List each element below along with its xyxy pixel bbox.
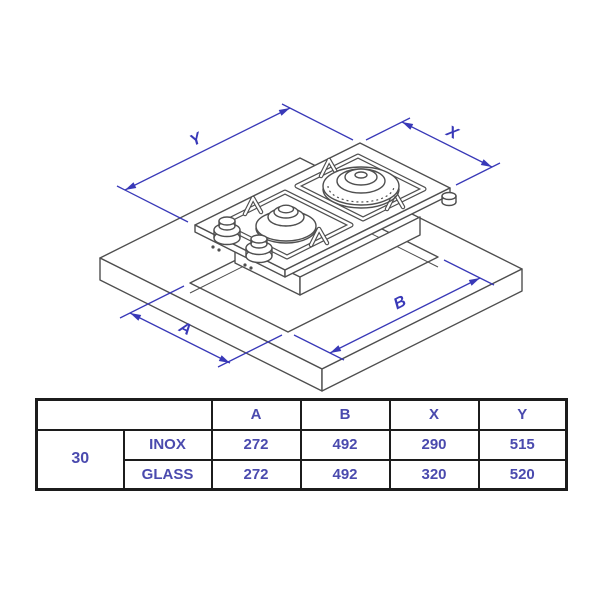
value-cell: 515 bbox=[479, 430, 567, 460]
dim-a-arrow bbox=[219, 355, 230, 363]
header-col-b: B bbox=[301, 400, 390, 430]
value-cell: 290 bbox=[390, 430, 479, 460]
dimensions-table: A B X Y 30 INOX 272 492 290 515 GLASS 27… bbox=[35, 398, 568, 491]
header-col-x: X bbox=[390, 400, 479, 430]
page: A B bbox=[0, 0, 600, 600]
dim-x-arrow bbox=[402, 122, 413, 130]
header-col-y: Y bbox=[479, 400, 567, 430]
header-col-a: A bbox=[212, 400, 301, 430]
gas-connection-tab bbox=[442, 193, 456, 206]
dim-x-extension-line bbox=[456, 163, 500, 185]
dim-y-extension-line bbox=[117, 186, 188, 222]
dim-y-label: Y bbox=[187, 129, 205, 150]
value-cell: 272 bbox=[212, 460, 301, 490]
dim-y-arrow bbox=[279, 108, 290, 116]
dim-x-extension-line bbox=[366, 118, 410, 140]
variant-cell: GLASS bbox=[124, 460, 212, 490]
dim-y-extension-line bbox=[282, 104, 353, 140]
dim-y-arrow bbox=[125, 182, 136, 190]
value-cell: 320 bbox=[390, 460, 479, 490]
variant-cell: INOX bbox=[124, 430, 212, 460]
value-cell: 492 bbox=[301, 460, 390, 490]
value-cell: 492 bbox=[301, 430, 390, 460]
dim-x-line bbox=[402, 122, 492, 167]
table-header-row: A B X Y bbox=[37, 400, 567, 430]
dim-a-arrow bbox=[130, 313, 141, 321]
installation-diagram: A B bbox=[0, 0, 600, 600]
dim-x-label: X bbox=[443, 123, 462, 144]
value-cell: 520 bbox=[479, 460, 567, 490]
large-burner bbox=[323, 167, 399, 208]
dim-x-arrow bbox=[481, 159, 492, 167]
value-cell: 272 bbox=[212, 430, 301, 460]
table-row-inox: 30 INOX 272 492 290 515 bbox=[37, 430, 567, 460]
dim-a-label: A bbox=[175, 318, 194, 339]
size-cell: 30 bbox=[37, 430, 124, 490]
header-blank-cell bbox=[37, 400, 212, 430]
